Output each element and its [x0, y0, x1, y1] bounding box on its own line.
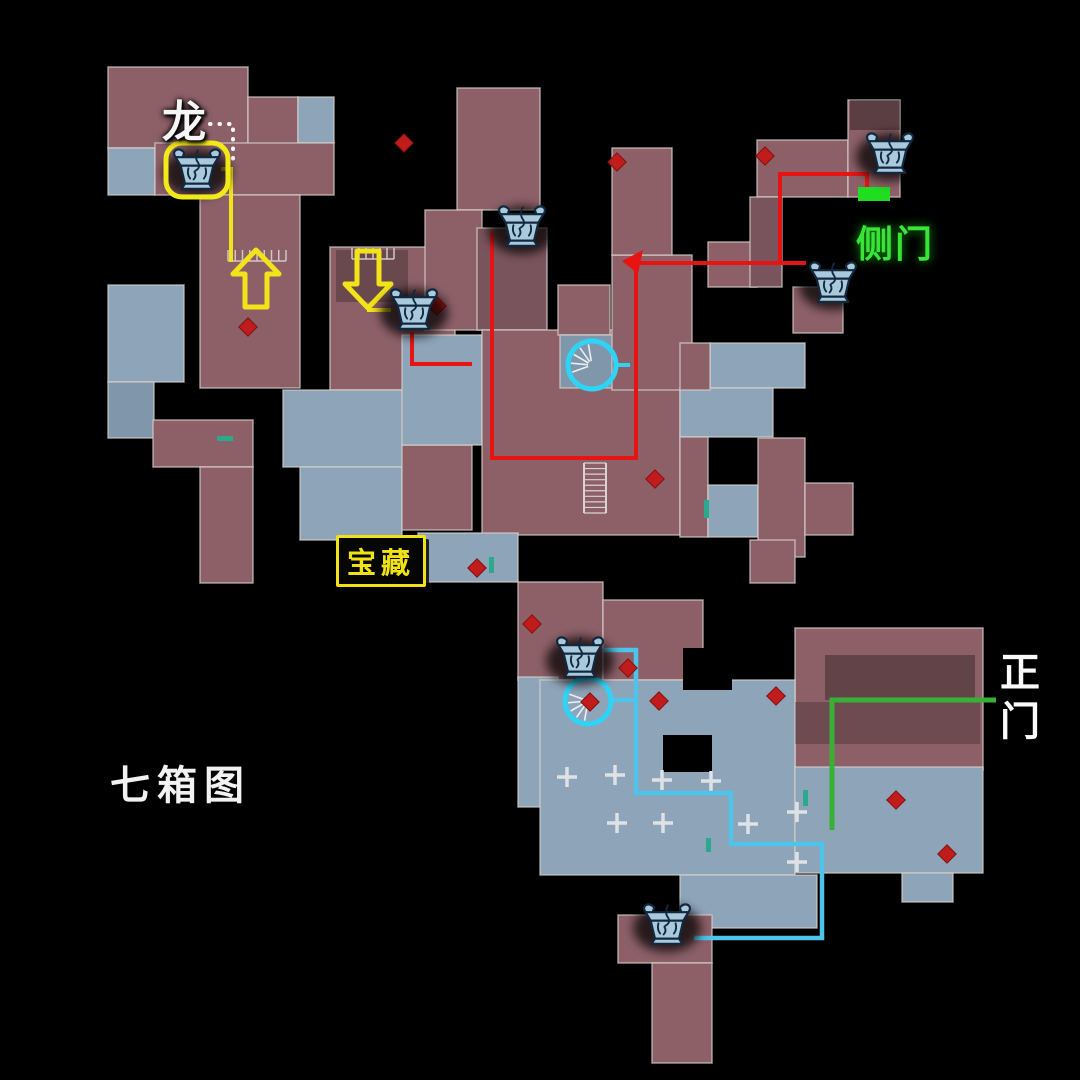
map-room: [902, 873, 953, 902]
treasure-chest-marker: [380, 289, 448, 337]
game-map-screenshot: 龙 侧门 宝藏 七箱图 正 门: [0, 0, 1080, 1080]
label-main-gate: 正 门: [1000, 649, 1040, 747]
map-room: [248, 97, 298, 148]
map-room: [680, 343, 710, 390]
treasure-chest-marker: [856, 133, 924, 181]
label-dragon: 龙: [162, 86, 206, 150]
teal-door-tick: [706, 838, 711, 852]
map-room: [750, 540, 795, 583]
teal-door-tick: [489, 557, 494, 573]
side-door-marker: [858, 187, 890, 201]
map-room: [757, 140, 848, 197]
map-room: [200, 195, 300, 388]
map-room: [805, 483, 853, 535]
treasure-chest-marker: [633, 904, 701, 952]
shade-patch: [663, 735, 712, 772]
shade-patch: [825, 655, 975, 700]
label-main-gate-char2: 门: [1000, 698, 1040, 747]
teal-door-tick: [217, 436, 233, 441]
map-room: [680, 388, 773, 437]
map-room: [300, 467, 402, 540]
map-room: [418, 533, 518, 582]
map-room: [153, 420, 253, 467]
treasure-map-canvas: [0, 0, 1080, 1080]
map-room: [750, 197, 782, 287]
label-treasure: 宝藏: [336, 535, 426, 587]
map-room: [558, 285, 610, 335]
label-side-door: 侧门: [856, 214, 934, 268]
map-room: [680, 437, 708, 537]
shade-patch: [683, 648, 732, 690]
map-room: [200, 467, 253, 583]
map-room: [758, 438, 805, 557]
map-room: [108, 148, 155, 195]
teal-door-tick: [803, 790, 808, 806]
map-room: [402, 445, 472, 530]
teal-door-tick: [704, 500, 709, 518]
map-room: [298, 97, 334, 143]
map-room: [457, 88, 540, 210]
shade-patch: [850, 100, 900, 130]
red-diamond-marker: [395, 134, 413, 152]
map-room: [108, 382, 154, 438]
map-room: [708, 485, 758, 537]
treasure-chest-marker: [546, 637, 614, 685]
treasure-chest-marker: [488, 206, 556, 254]
shade-patch: [795, 702, 980, 744]
label-main-gate-char1: 正: [1000, 649, 1040, 698]
map-room: [710, 343, 805, 388]
map-room: [652, 963, 712, 1063]
treasure-chest-marker: [799, 262, 867, 310]
label-map-title: 七箱图: [110, 753, 251, 811]
map-room: [108, 285, 184, 382]
